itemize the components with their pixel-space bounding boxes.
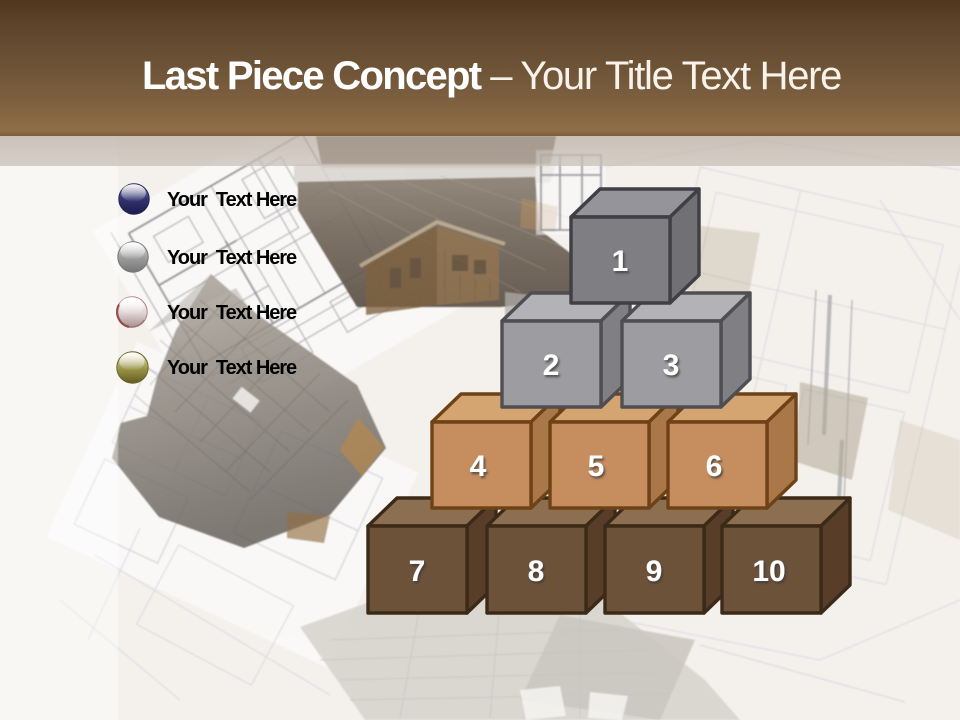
svg-text:8: 8 [528, 555, 545, 588]
svg-text:7: 7 [409, 555, 426, 588]
svg-text:10: 10 [752, 555, 785, 588]
svg-text:9: 9 [646, 555, 663, 588]
svg-text:5: 5 [588, 450, 605, 483]
svg-text:2: 2 [543, 349, 560, 382]
svg-text:4: 4 [470, 450, 487, 483]
svg-text:1: 1 [612, 245, 629, 278]
svg-text:6: 6 [706, 450, 723, 483]
svg-text:3: 3 [663, 349, 680, 382]
